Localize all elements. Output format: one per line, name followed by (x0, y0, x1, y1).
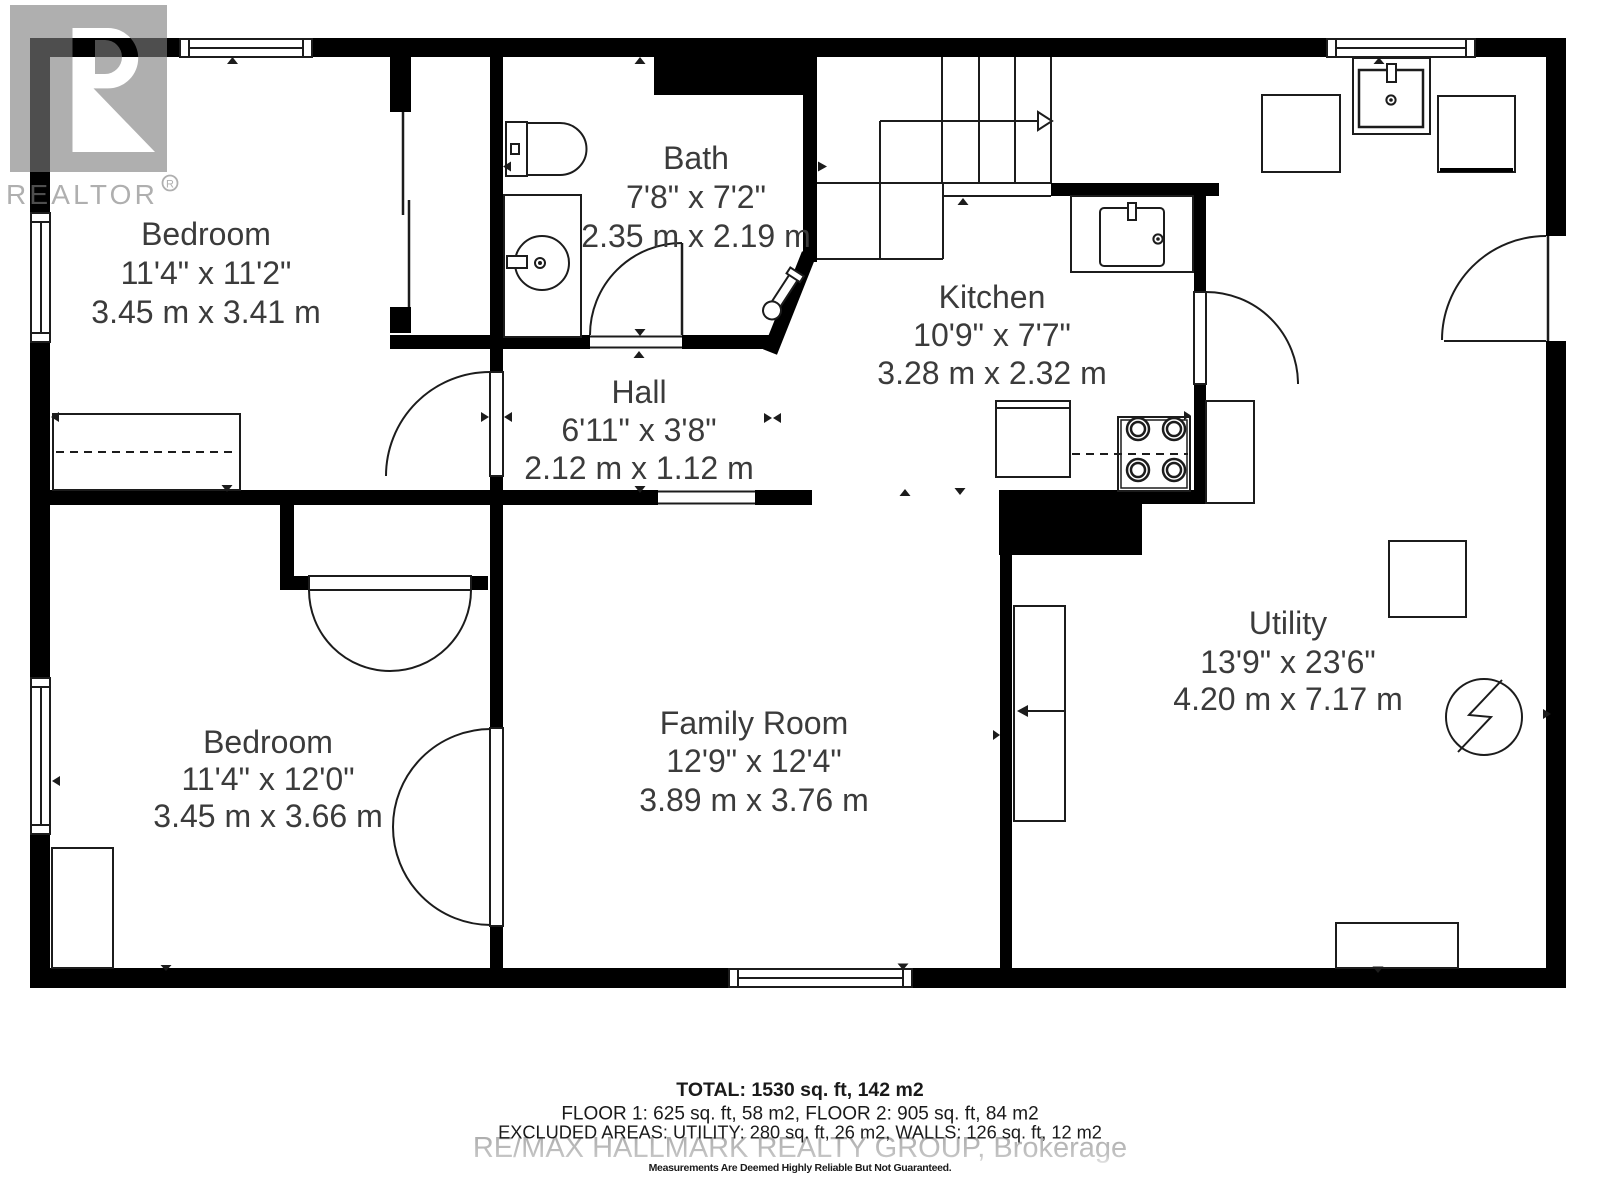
svg-text:6'11" x 3'8": 6'11" x 3'8" (561, 412, 716, 448)
svg-text:3.28 m x 2.32 m: 3.28 m x 2.32 m (877, 355, 1106, 391)
svg-text:3.89 m x 3.76 m: 3.89 m x 3.76 m (639, 782, 868, 818)
svg-text:Bedroom: Bedroom (203, 724, 333, 760)
svg-text:Family Room: Family Room (660, 705, 848, 741)
svg-text:REALTOR: REALTOR (6, 179, 158, 210)
svg-text:2.12 m x 1.12 m: 2.12 m x 1.12 m (524, 450, 753, 486)
svg-text:Utility: Utility (1249, 605, 1327, 641)
svg-text:11'4" x 12'0": 11'4" x 12'0" (181, 761, 354, 797)
svg-text:FLOOR 1: 625 sq. ft, 58 m2, FL: FLOOR 1: 625 sq. ft, 58 m2, FLOOR 2: 905… (561, 1104, 1038, 1125)
svg-text:10'9" x 7'7": 10'9" x 7'7" (913, 317, 1071, 353)
svg-text:Kitchen: Kitchen (939, 279, 1046, 315)
svg-text:TOTAL: 1530 sq. ft, 142 m2: TOTAL: 1530 sq. ft, 142 m2 (676, 1079, 924, 1101)
svg-text:11'4" x 11'2": 11'4" x 11'2" (121, 255, 292, 291)
svg-text:3.45 m x 3.41 m: 3.45 m x 3.41 m (91, 294, 320, 330)
svg-text:R: R (166, 179, 174, 191)
svg-text:4.20 m x 7.17 m: 4.20 m x 7.17 m (1173, 681, 1402, 717)
svg-text:Bath: Bath (663, 140, 729, 176)
svg-text:7'8" x 7'2": 7'8" x 7'2" (626, 179, 766, 215)
svg-text:13'9" x 23'6": 13'9" x 23'6" (1200, 644, 1376, 680)
svg-text:Bedroom: Bedroom (141, 216, 271, 252)
svg-text:Hall: Hall (611, 374, 666, 410)
svg-text:Measurements Are Deemed Highly: Measurements Are Deemed Highly Reliable … (649, 1162, 952, 1174)
svg-text:12'9" x 12'4": 12'9" x 12'4" (666, 743, 842, 779)
svg-text:EXCLUDED AREAS: UTILITY: 280 s: EXCLUDED AREAS: UTILITY: 280 sq. ft, 26 … (498, 1123, 1102, 1143)
svg-text:3.45 m x 3.66 m: 3.45 m x 3.66 m (153, 798, 382, 834)
svg-text:2.35 m x 2.19 m: 2.35 m x 2.19 m (581, 218, 810, 254)
